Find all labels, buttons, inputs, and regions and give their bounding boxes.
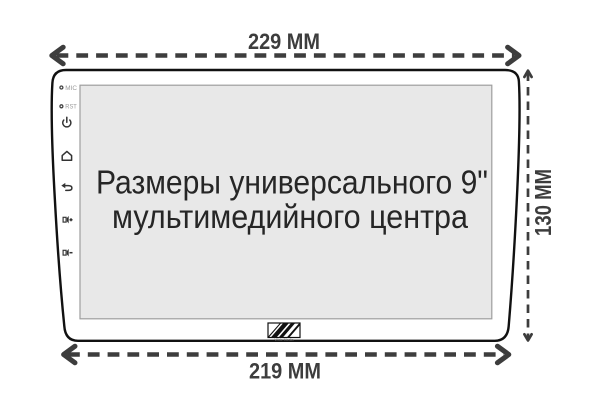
- svg-text:Размеры универсального 9": Размеры универсального 9": [96, 164, 488, 201]
- svg-text:Wide Media: Wide Media: [275, 338, 294, 342]
- svg-text:RST: RST: [65, 104, 77, 111]
- svg-text:130 MM: 130 MM: [530, 169, 556, 236]
- svg-text:MIC: MIC: [65, 85, 77, 92]
- svg-text:мультимедийного центра: мультимедийного центра: [112, 198, 469, 235]
- svg-text:229 MM: 229 MM: [248, 29, 320, 54]
- svg-text:219 MM: 219 MM: [249, 359, 321, 384]
